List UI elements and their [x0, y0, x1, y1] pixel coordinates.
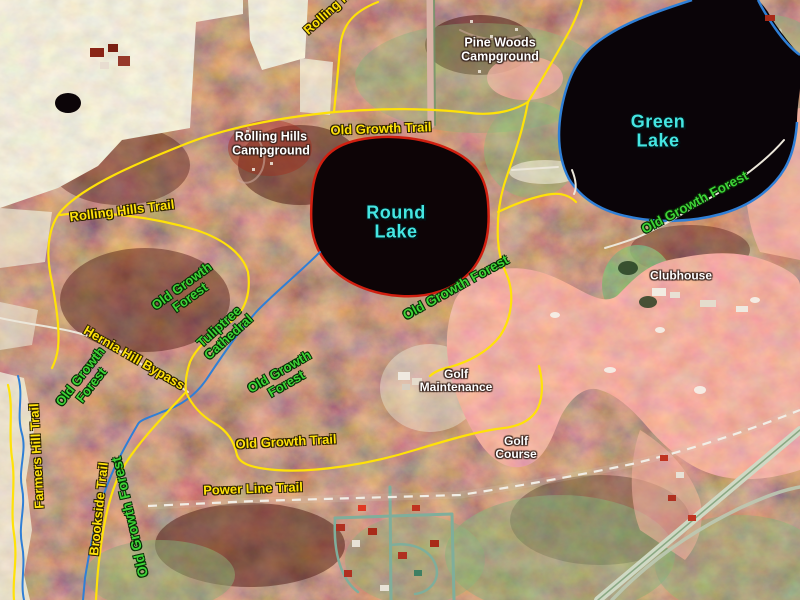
- round-lake-water: [311, 137, 489, 296]
- map-terrain-layer: [0, 0, 800, 600]
- aerial-trail-map: Green Lake Round Lake Pine Woods Campgro…: [0, 0, 800, 600]
- farm-pond: [55, 93, 81, 113]
